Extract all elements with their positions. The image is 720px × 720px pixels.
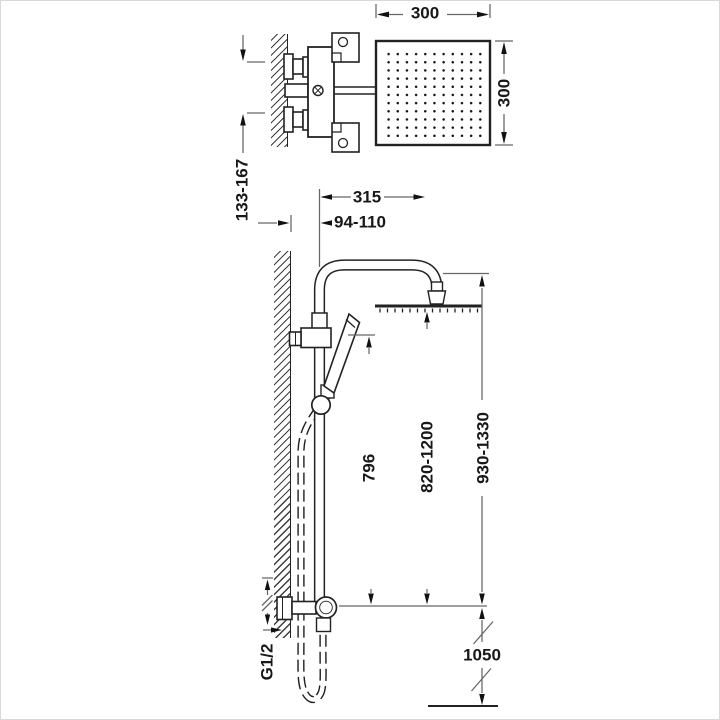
diagram-linework xyxy=(1,1,719,719)
wall-supply-elbow xyxy=(277,597,337,632)
overhead-shower-side-view xyxy=(375,282,482,313)
wall-bracket xyxy=(290,328,332,348)
valve-handle-left xyxy=(332,33,359,62)
dim-head-depth-label: 300 xyxy=(496,77,513,109)
spray-ticks xyxy=(380,309,478,313)
valve-screw xyxy=(313,86,323,96)
dim-head-width-label: 300 xyxy=(409,5,441,22)
dim-inlet-spacing-label: 133-167 xyxy=(234,157,251,223)
dim-column-height-label: 820-1200 xyxy=(419,419,436,495)
dim-arm-reach-label: 315 xyxy=(351,189,383,206)
dim-overall-height-label: 930-1330 xyxy=(475,410,492,486)
arm-pipe-top-view xyxy=(334,87,377,94)
slider-knob xyxy=(312,396,330,414)
dim-wall-offset-label: 94-110 xyxy=(332,214,388,231)
dim-bar-height-label: 796 xyxy=(361,452,378,484)
dim-supply-height-label: 1050 xyxy=(461,647,503,664)
dim-inlet-spacing-lines xyxy=(243,35,265,153)
valve-center-stub xyxy=(285,84,308,97)
valve-handle-right xyxy=(332,123,359,152)
technical-drawing-canvas: 300 300 133-167 315 94-110 796 820-1200 … xyxy=(0,0,720,720)
spray-nozzle-grid xyxy=(383,49,484,139)
thread-size-label: G1/2 xyxy=(259,642,276,683)
thermostatic-valve-top-view xyxy=(284,33,377,152)
